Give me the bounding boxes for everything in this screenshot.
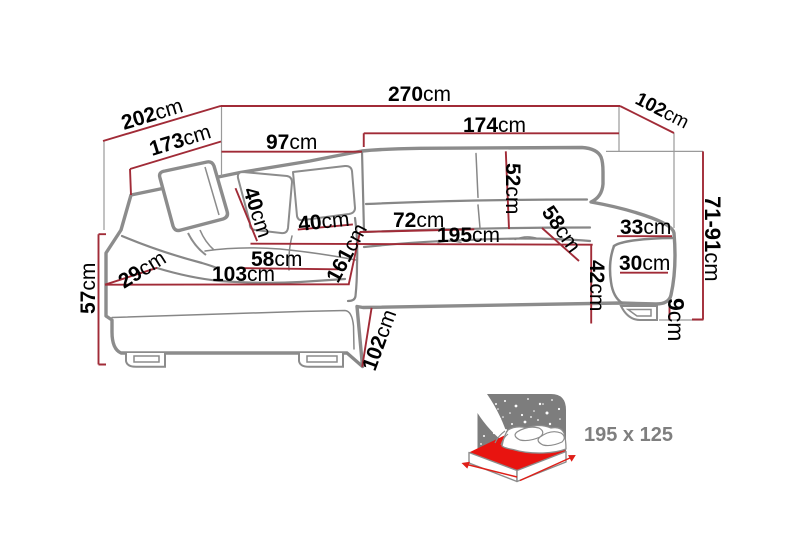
svg-text:202cm: 202cm [119,94,186,134]
svg-text:195 x 125: 195 x 125 [584,424,673,446]
svg-text:102cm: 102cm [358,307,401,374]
svg-text:270cm: 270cm [388,83,451,106]
svg-text:97cm: 97cm [266,131,317,154]
svg-text:9cm: 9cm [663,298,689,341]
svg-text:58cm: 58cm [251,248,302,271]
svg-text:52cm: 52cm [501,163,524,214]
svg-text:33cm: 33cm [620,216,671,239]
svg-text:30cm: 30cm [619,252,670,275]
svg-text:174cm: 174cm [463,114,526,137]
svg-text:195cm: 195cm [437,224,500,247]
svg-text:57cm: 57cm [77,263,100,314]
svg-text:71-91cm: 71-91cm [700,196,725,282]
svg-text:42cm: 42cm [585,260,608,311]
